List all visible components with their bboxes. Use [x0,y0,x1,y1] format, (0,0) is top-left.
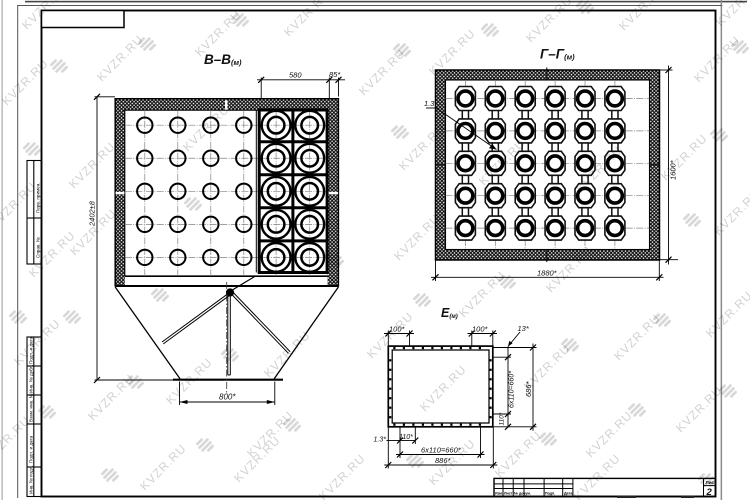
svg-text:Инв. № подл.: Инв. № подл. [29,465,34,494]
svg-text:85*: 85* [329,70,341,79]
svg-text:580: 580 [289,70,302,79]
svg-text:Лист: Лист [504,492,513,496]
svg-text:Подп.: Подп. [545,492,555,496]
svg-text:Справ. №: Справ. № [35,237,40,258]
svg-text:Взам. инв. №: Взам. инв. № [29,393,34,422]
svg-text:№ докум.: № докум. [514,492,531,496]
svg-text:800*: 800* [219,393,236,402]
svg-text:100*: 100* [472,325,489,334]
svg-text:1.3*: 1.3* [374,437,387,444]
svg-text:2: 2 [706,487,713,498]
svg-text:Инв. № дубл.: Инв. № дубл. [29,365,34,393]
svg-text:Подп. и дата: Подп. и дата [29,435,34,463]
svg-text:110*: 110* [399,434,413,441]
svg-text:13*: 13* [518,324,530,333]
svg-text:6x110=660*: 6x110=660* [509,371,516,408]
svg-text:110*: 110* [499,412,506,425]
svg-text:Изм.: Изм. [495,492,503,496]
svg-text:1.3: 1.3 [424,99,435,108]
